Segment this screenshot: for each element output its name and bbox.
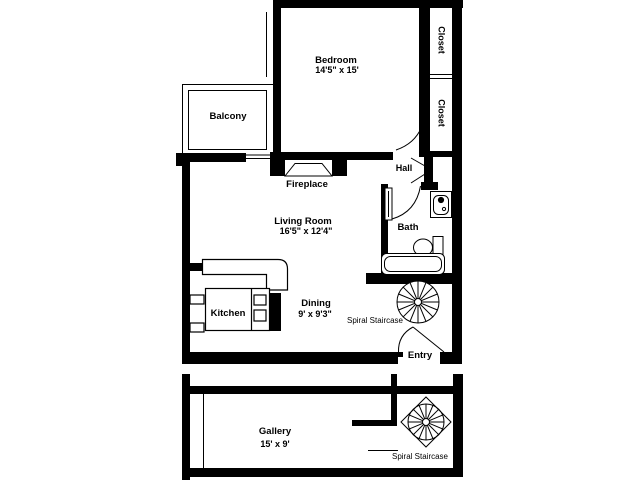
kitchen-appliance-upper	[190, 295, 204, 304]
staircase-main-post	[415, 299, 422, 306]
wall-hall-stub	[424, 157, 433, 184]
thin-lines	[183, 12, 453, 468]
fireplace-label: Fireplace	[286, 180, 328, 190]
wall-bedroom-west	[273, 0, 281, 160]
wall-gallery-alcove-vertical	[391, 374, 397, 426]
balcony-label: Balcony	[210, 112, 247, 122]
wall-closet-bottom	[430, 151, 452, 157]
kitchen-label: Kitchen	[211, 309, 246, 319]
hall-label: Hall	[396, 164, 413, 173]
fireplace-pier-right	[332, 152, 347, 176]
dining-label: Dining	[301, 299, 331, 309]
gallery-label: Gallery	[259, 427, 291, 437]
wall-top	[273, 0, 463, 8]
entry-door-leaf	[413, 327, 444, 352]
bath-sink-faucet	[438, 197, 443, 202]
kitchen-counter-peninsula	[203, 260, 288, 291]
floor-plan: Bedroom 14'5" x 15' Closet Closet Balcon…	[0, 0, 640, 480]
staircase-gallery-post	[423, 419, 430, 426]
entry-jamb	[398, 352, 403, 357]
kitchen-stove	[254, 310, 266, 321]
closet-bottom-label: Closet	[437, 99, 446, 127]
spiral-staircase-main-label: Spiral Staircase	[347, 317, 403, 325]
spiral-staircase-main	[397, 281, 439, 323]
wall-balcony-south	[189, 153, 246, 162]
wall-east-exterior	[452, 0, 462, 364]
wall-gallery-alcove-horizontal	[352, 420, 397, 426]
wall-bottom-right	[440, 352, 462, 364]
wall-gallery-east	[453, 374, 463, 477]
entry-label: Entry	[408, 351, 432, 361]
wall-west-exterior	[182, 154, 190, 364]
wall-kitchen-bar	[270, 293, 281, 331]
wall-bottom-main	[182, 352, 398, 364]
bath-door-arc	[392, 186, 421, 219]
spiral-staircase-gallery-label: Spiral Staircase	[392, 453, 448, 461]
dining-dimensions: 9' x 9'3"	[298, 310, 332, 319]
wall-gallery-north	[182, 386, 463, 394]
fireplace-pier-left	[270, 152, 285, 176]
wall-gallery-south	[182, 468, 463, 477]
wall-bedroom-east	[419, 6, 430, 157]
living-room-dimensions: 16'5" x 12'4"	[280, 227, 333, 236]
kitchen-sink-basin	[254, 295, 266, 305]
hall-bifold-door-line1	[411, 158, 425, 166]
gallery-dimensions: 15' x 9'	[260, 440, 289, 449]
wall-bath-north	[421, 182, 438, 190]
fireplace-hearth	[285, 164, 332, 177]
bath-label: Bath	[397, 223, 418, 233]
kitchen-appliance-lower	[190, 323, 204, 332]
spiral-staircase-gallery	[401, 397, 451, 447]
hall-bifold-door-line2	[411, 174, 425, 183]
closet-top-label: Closet	[437, 26, 446, 54]
bedroom-dimensions: 14'5" x 15'	[315, 66, 359, 75]
entry-door-arc	[398, 327, 413, 352]
